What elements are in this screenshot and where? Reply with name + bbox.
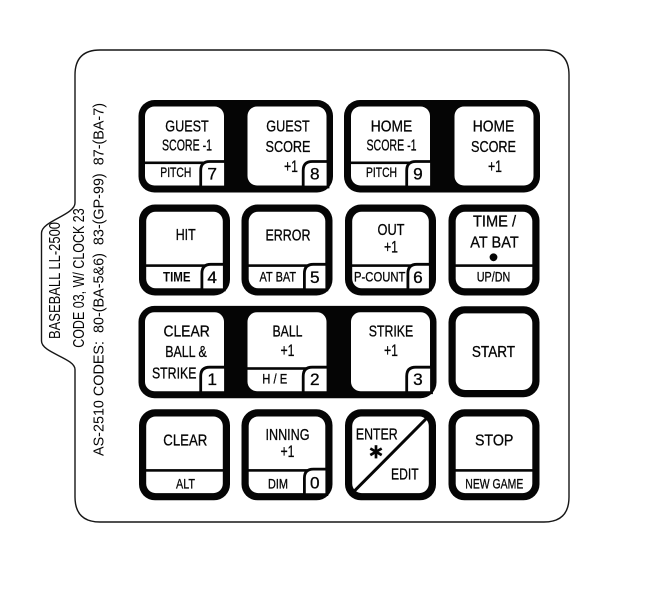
svg-text:NEW GAME: NEW GAME: [465, 476, 523, 491]
svg-text:INNING: INNING: [266, 427, 310, 444]
svg-text:3: 3: [413, 370, 423, 389]
svg-text:+1: +1: [384, 238, 398, 256]
svg-text:OUT: OUT: [378, 222, 405, 239]
svg-text:PITCH: PITCH: [160, 165, 191, 180]
svg-text:CLEAR: CLEAR: [163, 324, 209, 341]
svg-text:7: 7: [207, 164, 217, 183]
svg-text:+1: +1: [384, 342, 398, 360]
svg-text:1: 1: [207, 370, 217, 389]
svg-text:AT BAT: AT BAT: [260, 270, 297, 285]
svg-text:STRIKE: STRIKE: [369, 324, 414, 341]
svg-text:GUEST: GUEST: [266, 118, 310, 135]
svg-text:TIME: TIME: [163, 270, 191, 285]
svg-text:CODE 03, W/ CLOCK 23: CODE 03, W/ CLOCK 23: [71, 208, 88, 348]
svg-text:HOME: HOME: [473, 118, 515, 135]
svg-text:STRIKE: STRIKE: [152, 365, 197, 382]
svg-text:START: START: [472, 344, 515, 361]
svg-text:BALL &: BALL &: [165, 344, 207, 361]
svg-text:BALL: BALL: [273, 324, 303, 341]
svg-text:UP/DN: UP/DN: [477, 270, 511, 285]
svg-text:AT BAT: AT BAT: [470, 234, 519, 251]
svg-text:PITCH: PITCH: [366, 165, 397, 180]
svg-text:HIT: HIT: [176, 227, 196, 244]
svg-text:ERROR: ERROR: [266, 227, 311, 244]
svg-text:AS-2510 CODES: 80-(BA-5&6) 8: AS-2510 CODES: 80-(BA-5&6) 83-(GP-99) 87…: [90, 103, 107, 456]
svg-text:+1: +1: [281, 342, 295, 360]
svg-text:TIME /: TIME /: [473, 213, 517, 230]
svg-text:ENTER: ENTER: [356, 426, 398, 443]
svg-text:9: 9: [413, 164, 423, 183]
svg-text:HOME: HOME: [371, 118, 413, 135]
svg-text:H / E: H / E: [262, 372, 287, 387]
svg-text:STOP: STOP: [475, 432, 514, 449]
svg-text:SCORE -1: SCORE -1: [367, 138, 417, 155]
svg-text:6: 6: [413, 268, 423, 287]
svg-text:+1: +1: [488, 158, 502, 176]
svg-text:0: 0: [310, 473, 320, 492]
svg-text:SCORE -1: SCORE -1: [162, 138, 212, 155]
svg-text:GUEST: GUEST: [165, 118, 209, 135]
svg-text:EDIT: EDIT: [391, 466, 419, 483]
svg-text:CLEAR: CLEAR: [163, 433, 207, 450]
svg-text:SCORE: SCORE: [471, 139, 516, 156]
svg-text:SCORE: SCORE: [266, 139, 311, 156]
svg-text:2: 2: [310, 370, 320, 389]
svg-text:ALT: ALT: [176, 476, 195, 491]
svg-text:4: 4: [207, 268, 217, 287]
svg-text:8: 8: [310, 164, 320, 183]
svg-text:+1: +1: [284, 158, 298, 176]
svg-text:5: 5: [310, 268, 320, 287]
svg-text:DIM: DIM: [268, 476, 288, 491]
svg-text:+1: +1: [281, 443, 295, 461]
svg-text:P-COUNT: P-COUNT: [354, 270, 405, 285]
svg-text:BASEBALL LL-2500: BASEBALL LL-2500: [47, 222, 64, 339]
